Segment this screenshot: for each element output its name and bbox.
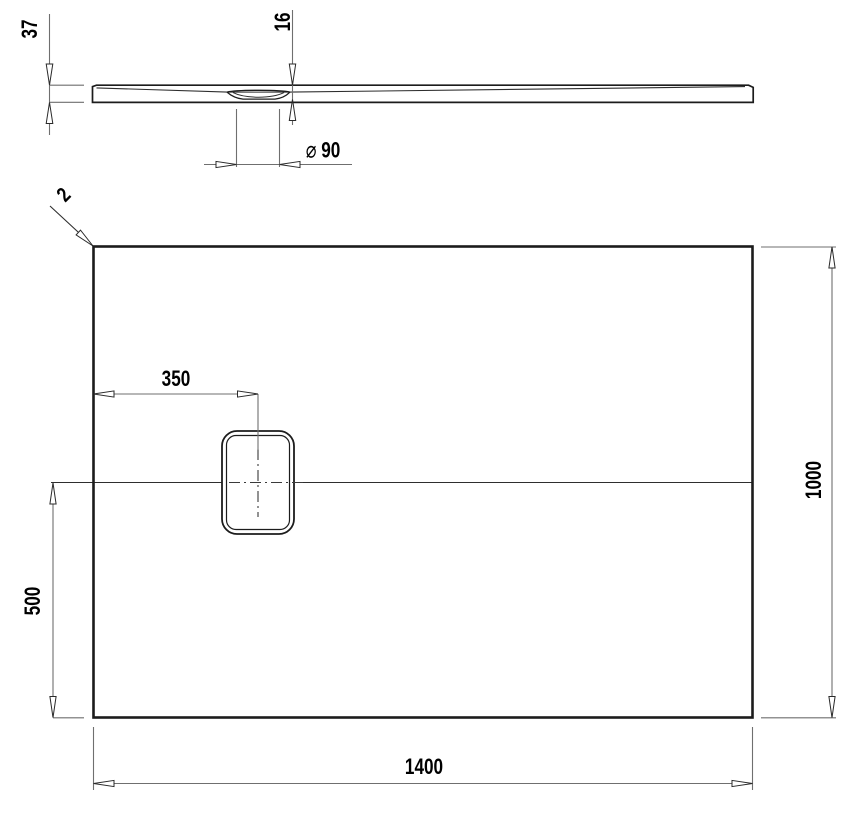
dim-label-drain-offset-bottom: 500: [22, 587, 44, 616]
drawing-canvas: [0, 0, 867, 818]
section-view: [46, 10, 753, 168]
diameter-symbol-icon: ⌀: [306, 137, 317, 163]
dim-37: [46, 14, 84, 135]
technical-drawing: 37 16 ⌀90 2 350 500 1000 1400: [0, 0, 867, 818]
dim-label-drain-diameter: ⌀90: [306, 139, 341, 162]
dim-label-tray-length: 1400: [405, 756, 443, 778]
dim-label-edge-height: 37: [19, 19, 41, 38]
drain-plan: [222, 431, 307, 534]
plan-view: [50, 206, 836, 790]
dim-500: [50, 483, 84, 718]
dim-label-drain-offset-left: 350: [162, 368, 191, 390]
dim-label-drain-diameter-value: 90: [321, 138, 340, 163]
corner-radius-leader: [50, 206, 93, 246]
dim-label-drain-recess-height: 16: [272, 12, 294, 31]
dim-label-tray-width: 1000: [803, 461, 825, 499]
